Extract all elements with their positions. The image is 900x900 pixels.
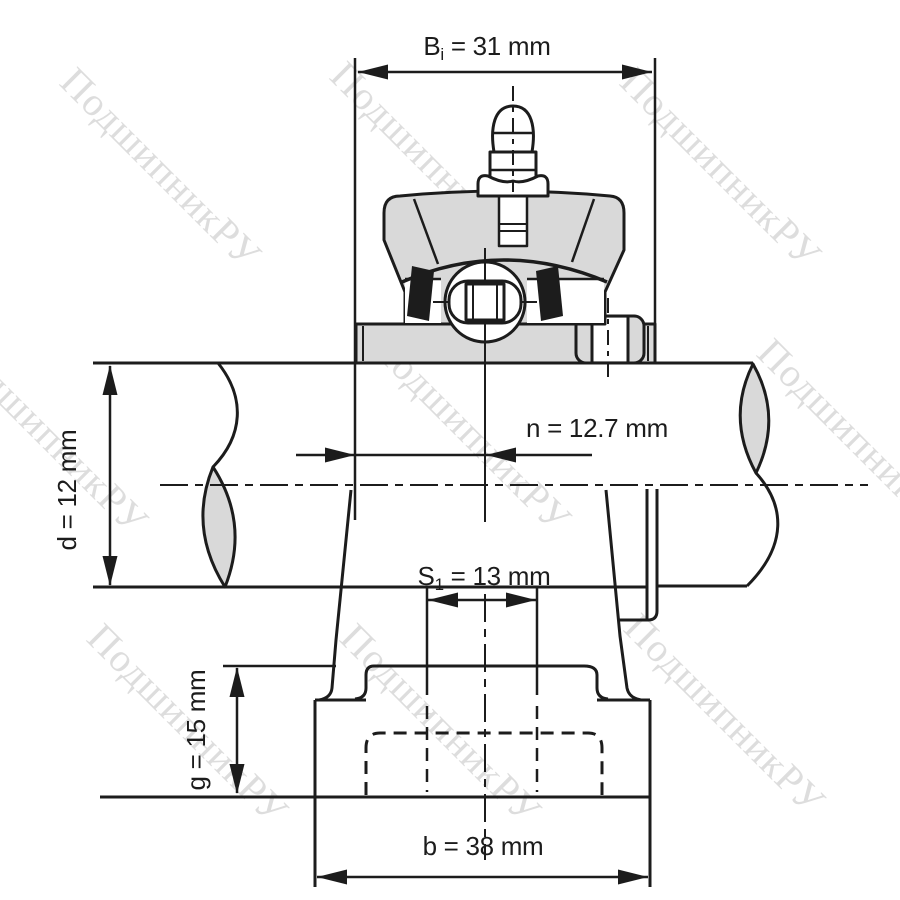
pedestal-left-edge	[319, 490, 351, 700]
dimension-b: b = 38 mm	[317, 831, 648, 885]
watermark-text: ПодшипникРУ	[52, 59, 271, 278]
nipple-thread-shank	[499, 196, 527, 246]
dimension-S1: S1 = 13 mm	[418, 561, 551, 608]
arrowhead-right-icon	[618, 870, 648, 885]
dim-symbol: B	[423, 31, 440, 61]
dim-value: = 31 mm	[444, 31, 551, 61]
arrowhead-left-icon	[317, 870, 347, 885]
arrowhead-right-icon	[506, 593, 536, 608]
arrowhead-right-icon	[325, 448, 355, 463]
watermark-text: ПодшипникРУ	[749, 330, 900, 549]
dimension-g-label: g = 15 mm	[181, 670, 211, 791]
bearing-drawing-canvas: ПодшипникРУ ПодшипникРУ ПодшипникРУ Подш…	[0, 0, 900, 900]
watermark-text: ПодшипникРУ	[612, 59, 831, 278]
arrowhead-left-icon	[428, 593, 458, 608]
watermark-text: ПодшипникРУ	[616, 605, 835, 824]
shaft-bore-square	[466, 284, 504, 320]
technical-drawing: ПодшипникРУ ПодшипникРУ ПодшипникРУ Подш…	[0, 0, 900, 900]
watermark-text: ПодшипникРУ	[332, 615, 551, 834]
shaft-break-curve-left	[213, 363, 237, 467]
dimension-n-label: n = 12.7 mm	[526, 413, 668, 443]
dim-subscript: 1	[435, 575, 444, 594]
arrowhead-up-icon	[230, 667, 245, 697]
shaft-break-lens-right	[740, 364, 769, 473]
shaft-break-curve-right	[747, 473, 778, 586]
pedestal-right-edge	[606, 490, 641, 700]
dimension-Bi-label: Bi = 31 mm	[423, 31, 550, 64]
dim-symbol: S	[418, 561, 435, 591]
dimension-b-label: b = 38 mm	[423, 831, 544, 861]
arrowhead-up-icon	[103, 365, 118, 395]
dimension-S1-label: S1 = 13 mm	[418, 561, 551, 594]
housing-side-rib-outer-line	[648, 489, 657, 620]
arrowhead-down-icon	[103, 556, 118, 586]
dim-value: = 13 mm	[444, 561, 551, 591]
dimension-d-label: d = 12 mm	[52, 430, 82, 551]
